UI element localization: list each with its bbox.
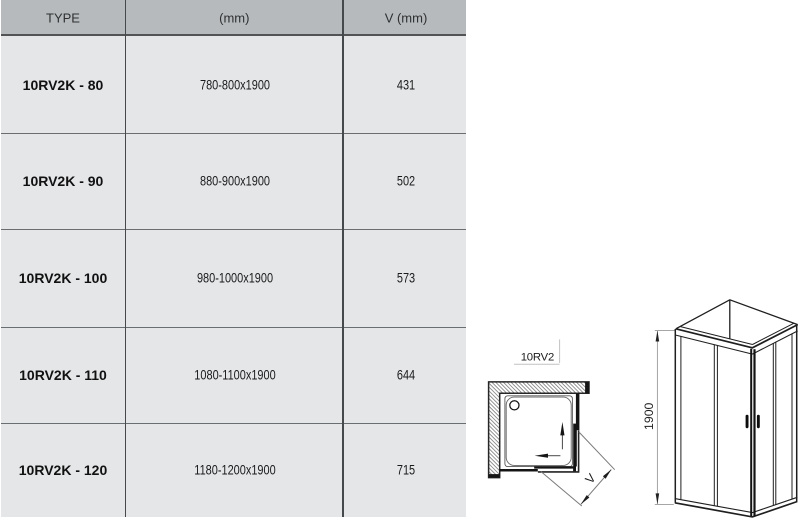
svg-text:10RV2: 10RV2 xyxy=(521,351,554,363)
svg-text:1900: 1900 xyxy=(642,402,656,430)
svg-text:V: V xyxy=(583,471,599,487)
